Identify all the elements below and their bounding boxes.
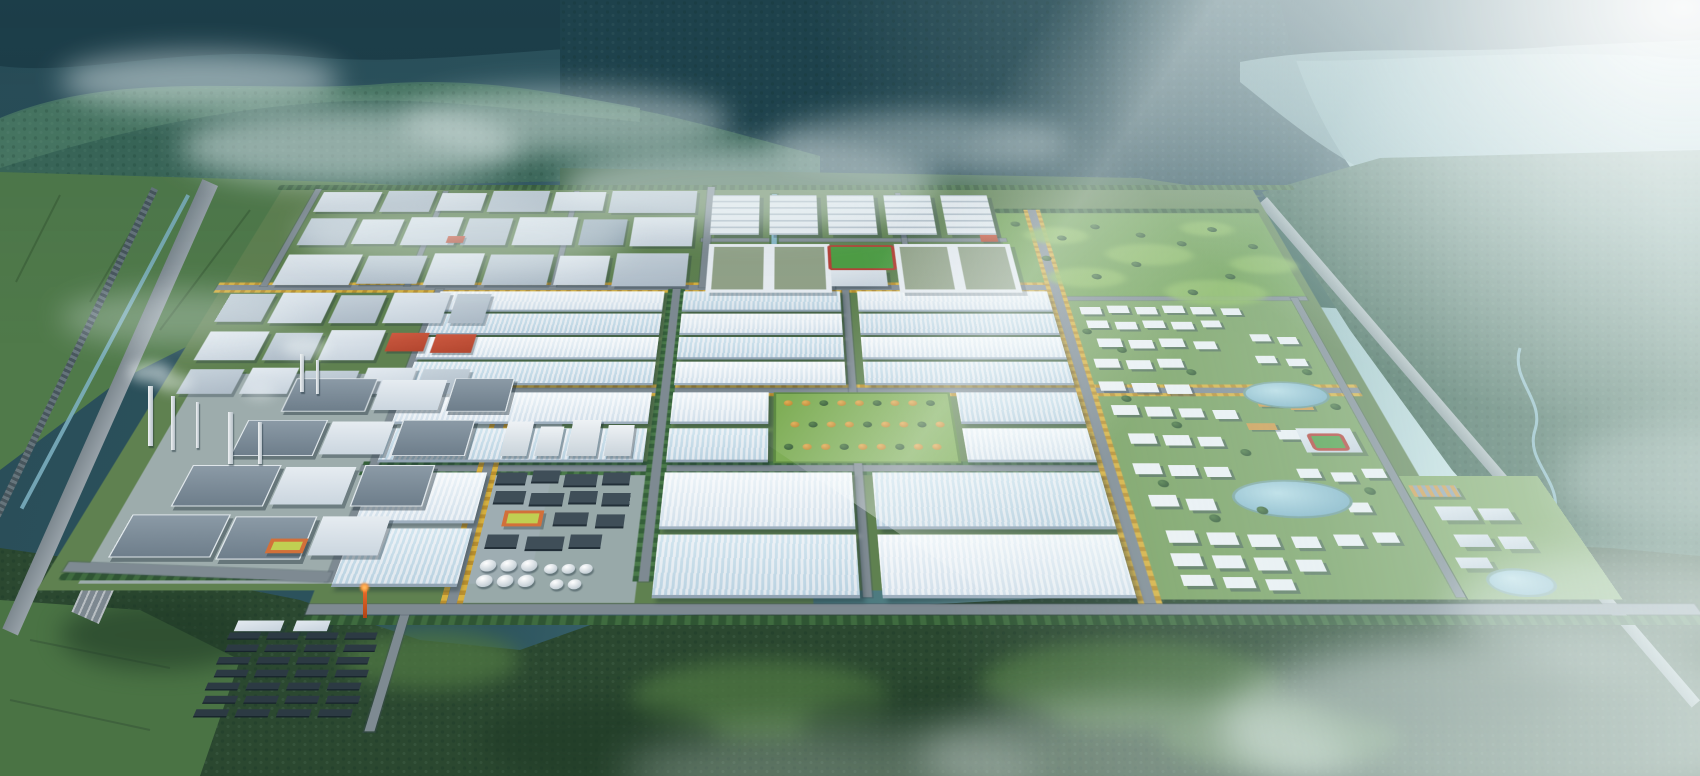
dormitory-slab-block [710, 195, 760, 235]
dormitory-slab-block [827, 195, 878, 235]
dormitory-annex [831, 270, 888, 286]
factory-building [430, 334, 477, 353]
warehouse-building [863, 362, 1075, 386]
factory-building [608, 191, 697, 213]
garden-tree [913, 444, 923, 450]
dark-panel-row [227, 632, 261, 639]
residential-building [1330, 472, 1357, 481]
residential-building [1170, 553, 1204, 566]
garden-tree [881, 422, 891, 428]
residential-building [1093, 359, 1120, 368]
warehouse-building [677, 337, 845, 359]
warehouse-building [670, 392, 769, 424]
residential-building [1372, 532, 1400, 542]
courtyard-building [769, 244, 832, 293]
factory-building [487, 191, 551, 212]
park-tree-cluster [1010, 222, 1021, 227]
residential-building [1111, 405, 1140, 415]
tree-band [301, 616, 1700, 625]
residential-building [1126, 360, 1154, 369]
dark-panel-row [294, 670, 329, 678]
plant-tower-block [604, 425, 635, 456]
residential-building [1333, 535, 1364, 546]
garden-tree [858, 444, 868, 450]
warehouse-building [652, 535, 861, 599]
plant-hall [308, 516, 391, 555]
factory-building [553, 256, 610, 285]
residential-building [1249, 334, 1272, 341]
residential-building [1361, 469, 1388, 478]
chimney-stack [300, 354, 304, 392]
plant-hall [281, 378, 379, 411]
warehouse-building [857, 291, 1053, 311]
steam-plume [282, 336, 330, 358]
chimney-stack [228, 412, 233, 464]
garden-tree [935, 422, 945, 428]
factory-building [423, 253, 485, 285]
dark-panel-row [276, 709, 312, 717]
garden-tree [890, 400, 900, 406]
dark-panel-row [325, 696, 360, 704]
residential-building [1277, 337, 1300, 344]
steam-plume [155, 374, 193, 392]
chimney-stack [171, 396, 175, 450]
factory-building [578, 219, 628, 245]
courtyard-building [705, 244, 769, 293]
steam-plume [244, 384, 276, 400]
tree-band [277, 185, 1295, 190]
campus-building [1455, 558, 1494, 569]
residential-building [1193, 341, 1218, 349]
warehouse-building [962, 428, 1097, 462]
residential-building [1220, 308, 1242, 315]
residential-building [1128, 340, 1155, 349]
utility-building [528, 493, 564, 507]
warehouse-building [872, 472, 1116, 529]
utility-building [524, 537, 564, 552]
orange-roof-row [1246, 423, 1278, 430]
residential-building [1255, 356, 1278, 363]
dark-panel-row [335, 657, 369, 665]
campus-striped-roof [1408, 485, 1462, 496]
residential-building [1162, 306, 1186, 313]
plant-hall [350, 465, 436, 506]
dark-panel-row [216, 657, 251, 665]
garden-tree [895, 444, 905, 450]
red-roof-building [980, 235, 999, 242]
residential-building [1162, 435, 1192, 445]
utility-building [495, 472, 528, 485]
plant-hall [230, 420, 328, 456]
plant-hall [390, 420, 475, 456]
garden-tree [837, 400, 846, 406]
garden-tree [784, 444, 793, 450]
garden-tree [819, 400, 828, 406]
chimney-stack [316, 360, 319, 394]
residential-building [1200, 320, 1222, 327]
residential-building [1128, 433, 1158, 443]
dark-panel-row [214, 670, 249, 678]
dark-panel-row [284, 696, 320, 704]
residential-building [1296, 469, 1322, 478]
sports-field [827, 245, 897, 270]
dark-panel-row [225, 645, 260, 652]
utility-building [595, 514, 625, 528]
chimney-stack [196, 402, 199, 448]
garden-tree [802, 400, 811, 406]
courtyard-building [894, 244, 962, 293]
residential-building [1212, 410, 1239, 419]
warehouse-building [861, 337, 1067, 359]
dark-panel-row [334, 670, 369, 678]
garden-tree [784, 400, 793, 406]
residential-building [1148, 495, 1180, 507]
residential-building [1247, 535, 1281, 547]
dark-panel-row [343, 645, 377, 652]
warehouse-building [956, 392, 1086, 424]
residential-building [1106, 306, 1129, 313]
dark-panel-row [234, 709, 270, 717]
residential-building [1190, 307, 1214, 314]
orange-green-roof-building [501, 510, 544, 526]
residential-building [1158, 338, 1185, 347]
plant-tower-block [566, 420, 602, 456]
plant-hall [269, 467, 356, 505]
residential-building [1142, 320, 1166, 328]
residential-building [1253, 558, 1288, 571]
flare-flame [360, 583, 369, 592]
street-north-south [364, 613, 409, 731]
garden-tree [839, 444, 849, 450]
garden-tree [872, 400, 881, 406]
garden-tree [821, 444, 831, 450]
dark-panel-row [286, 683, 321, 691]
facility-building [234, 620, 285, 631]
residential-building [1097, 338, 1124, 347]
residential-building [1098, 381, 1126, 390]
street-east-west [701, 238, 1007, 241]
dark-panel-row [305, 632, 339, 639]
utility-building [568, 491, 598, 504]
utility-building [493, 491, 527, 504]
flare-stack [363, 590, 367, 618]
garden-tree [876, 444, 886, 450]
residential-building [1212, 555, 1246, 568]
utility-building [568, 535, 602, 550]
warehouse-building [674, 362, 846, 386]
dormitory-slab-block [883, 195, 937, 235]
dark-panel-row [304, 645, 338, 652]
warehouse-building [877, 535, 1136, 599]
factory-building [384, 333, 429, 352]
utility-building [601, 493, 631, 507]
dark-panel-row [256, 657, 291, 665]
utility-building [563, 474, 598, 487]
dark-panel-row [202, 696, 238, 704]
garden-tree [790, 422, 799, 428]
factory-building [313, 192, 383, 212]
residential-building [1132, 463, 1163, 474]
utility-building [484, 535, 519, 550]
residential-building [1079, 307, 1102, 314]
factory-building [511, 217, 578, 245]
chimney-stack [148, 386, 153, 446]
garden-tree [863, 422, 873, 428]
dark-panel-row [243, 696, 279, 704]
residential-building [1086, 320, 1110, 328]
garden-tree [808, 422, 817, 428]
residential-building [1114, 322, 1138, 330]
factory-building [435, 193, 487, 211]
residential-building [1197, 437, 1225, 447]
residential-building [1285, 359, 1308, 366]
aerial-render-industrial-park [0, 0, 1700, 776]
warehouse-building [659, 472, 856, 529]
factory-building [629, 217, 694, 246]
utility-building [602, 472, 631, 485]
dormitory-slab-block [940, 195, 997, 235]
factory-building [460, 218, 514, 245]
plant-hall [371, 380, 447, 410]
residential-building [1178, 408, 1205, 417]
campus-building [1434, 506, 1479, 520]
residential-building [1204, 467, 1232, 477]
dark-panel-row [327, 683, 362, 691]
factory-building [379, 191, 437, 212]
factory-building [611, 253, 689, 286]
plant-hall [319, 422, 395, 455]
factory-building [551, 192, 607, 211]
warehouse-building [859, 314, 1060, 335]
orange-green-roof-building [265, 539, 309, 554]
factory-building [446, 236, 466, 243]
residential-building [1164, 384, 1193, 393]
residential-building [1291, 537, 1322, 548]
residential-building [1168, 465, 1199, 476]
chimney-stack [258, 422, 262, 464]
dark-panel-row [264, 645, 298, 652]
dark-panel-row [205, 683, 241, 691]
plant-hall [445, 378, 515, 411]
garden-tree [917, 422, 927, 428]
utility-building [531, 471, 561, 484]
warehouse-building [666, 428, 768, 462]
dark-panel-row [317, 709, 353, 717]
garden-tree [932, 444, 942, 450]
residential-building [1144, 407, 1173, 417]
garden-tree [827, 422, 836, 428]
residential-building [1157, 359, 1185, 368]
garden-tree [845, 422, 854, 428]
residential-building [1265, 579, 1297, 590]
factory-building [481, 255, 554, 286]
residential-building [1165, 530, 1198, 542]
dark-panel-row [266, 632, 300, 639]
dark-panel-row [245, 683, 281, 691]
garden-tree [908, 400, 918, 406]
residential-building [1134, 307, 1158, 314]
warehouse-building [682, 291, 842, 311]
dormitory-slab-block [769, 195, 818, 235]
boundary-road [305, 604, 1700, 614]
residential-building [1206, 532, 1239, 544]
utility-building [552, 512, 588, 526]
residential-building [1180, 575, 1214, 586]
residential-building [1171, 322, 1195, 330]
garden-tree [899, 422, 909, 428]
facility-building [293, 620, 331, 631]
garden-tree [855, 400, 864, 406]
dark-panel-row [193, 709, 230, 717]
warehouse-building [679, 314, 843, 335]
dark-panel-row [296, 657, 331, 665]
factory-building [356, 256, 428, 284]
residential-building [1295, 560, 1327, 572]
residential-building [1131, 383, 1159, 392]
campus-building [1453, 535, 1495, 547]
dark-panel-row [344, 632, 378, 639]
garden-tree [926, 400, 936, 406]
residential-building [1185, 499, 1217, 511]
residential-building [1223, 577, 1257, 588]
garden-tree [802, 444, 811, 450]
factory-building [272, 255, 363, 286]
dark-panel-row [254, 670, 289, 678]
factory-building [382, 293, 451, 324]
